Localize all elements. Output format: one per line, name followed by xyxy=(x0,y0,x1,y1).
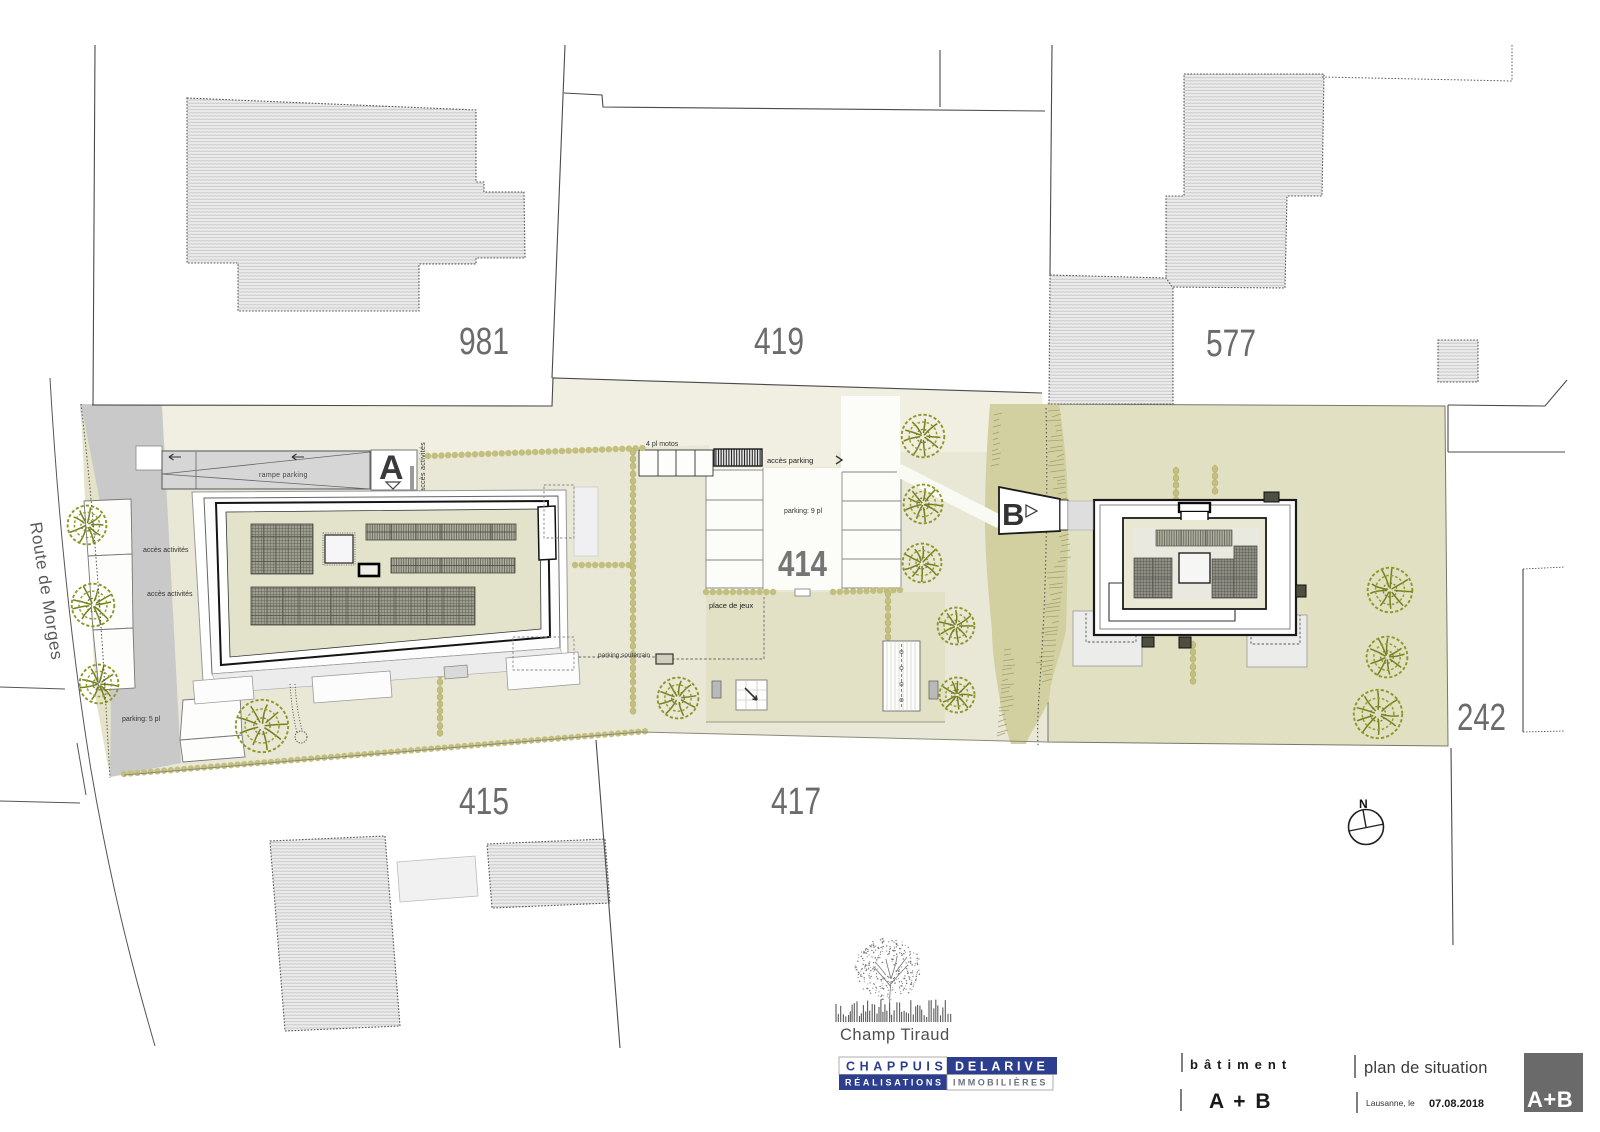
svg-text:accès parking: accès parking xyxy=(767,456,813,465)
svg-text:07.08.2018: 07.08.2018 xyxy=(1429,1098,1484,1110)
svg-text:242: 242 xyxy=(1457,697,1506,739)
svg-text:accès activités: accès activités xyxy=(147,591,193,598)
svg-text:CHAPPUIS: CHAPPUIS xyxy=(846,1060,947,1074)
svg-text:plan de situation: plan de situation xyxy=(1364,1059,1488,1077)
svg-text:417: 417 xyxy=(771,781,821,823)
svg-text:B: B xyxy=(1002,497,1024,532)
svg-text:place de jeux: place de jeux xyxy=(709,601,753,610)
svg-text:Champ Tiraud: Champ Tiraud xyxy=(840,1026,950,1044)
svg-text:415: 415 xyxy=(459,781,509,823)
svg-text:414: 414 xyxy=(778,543,827,584)
svg-text:981: 981 xyxy=(459,321,509,363)
svg-text:accès activités: accès activités xyxy=(420,442,427,492)
svg-text:N: N xyxy=(1359,797,1368,811)
svg-text:accès activités: accès activités xyxy=(143,547,189,554)
svg-text:parking: 5 pl: parking: 5 pl xyxy=(122,716,161,723)
svg-text:rampe parking: rampe parking xyxy=(259,472,308,479)
svg-text:parking souterrain: parking souterrain xyxy=(598,652,650,659)
svg-text:A + B: A + B xyxy=(1209,1090,1272,1113)
svg-text:parking: 9 pl: parking: 9 pl xyxy=(784,508,823,515)
svg-text:RÉALISATIONS: RÉALISATIONS xyxy=(845,1078,944,1088)
svg-text:A: A xyxy=(379,449,404,487)
svg-text:bâtiment: bâtiment xyxy=(1190,1057,1292,1072)
svg-text:4 pl motos: 4 pl motos xyxy=(646,441,679,448)
svg-text:DELARIVE: DELARIVE xyxy=(955,1060,1049,1074)
svg-text:Lausanne, le: Lausanne, le xyxy=(1366,1098,1415,1108)
svg-text:IMMOBILIÈRES: IMMOBILIÈRES xyxy=(953,1078,1048,1088)
svg-text:577: 577 xyxy=(1206,323,1256,365)
svg-text:A+B: A+B xyxy=(1527,1087,1573,1112)
svg-text:419: 419 xyxy=(754,321,804,363)
